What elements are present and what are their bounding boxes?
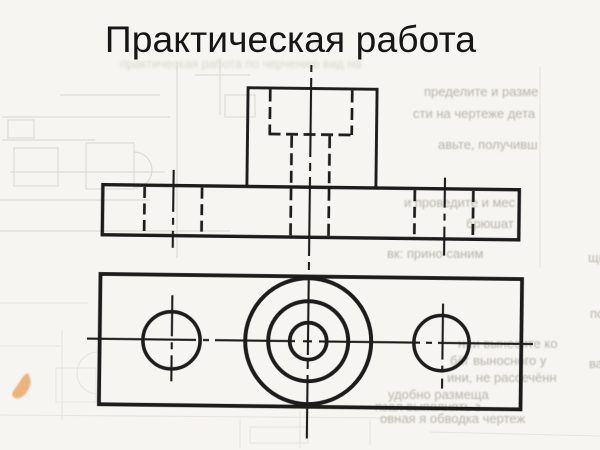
svg-text:сти на чертеже дета: сти на чертеже дета — [413, 106, 536, 121]
svg-text:по: по — [590, 306, 600, 321]
svg-text:авьте, получивш: авьте, получивш — [438, 137, 538, 152]
svg-text:вк: прино саним: вк: прино саним — [387, 246, 484, 261]
svg-text:и проведите и мес: и проведите и мес — [404, 195, 516, 210]
svg-text:щш: щш — [588, 250, 600, 265]
svg-text:пределите и разме: пределите и разме — [424, 84, 538, 99]
svg-text:ва: ва — [589, 356, 600, 371]
svg-text:ини, не рассечённ: ини, не рассечённ — [447, 370, 557, 385]
svg-text:овная я обводка чертеж: овная я обводка чертеж — [380, 411, 525, 426]
svg-text:Практическая работа: Практическая работа — [105, 18, 476, 60]
